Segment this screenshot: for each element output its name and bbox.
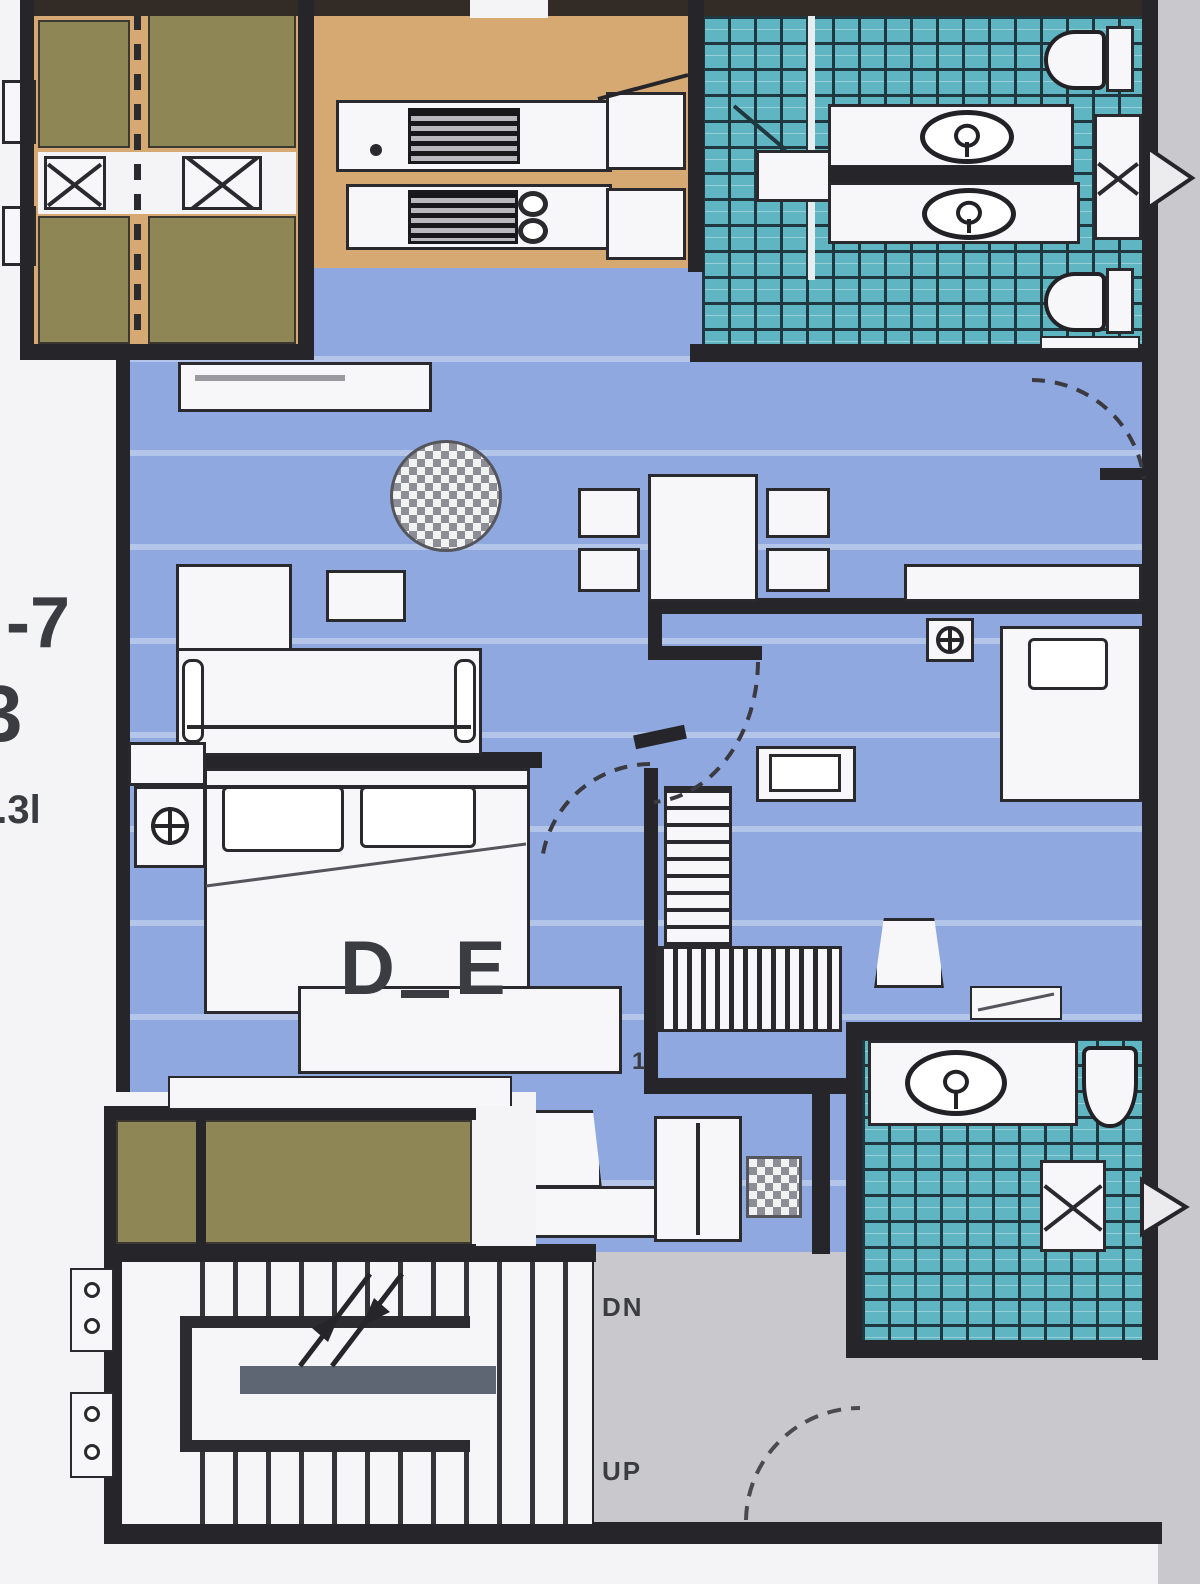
bath-sill xyxy=(1040,336,1140,350)
label-e: E xyxy=(455,925,506,1012)
balcony-divider xyxy=(196,1120,206,1244)
pillow xyxy=(1028,638,1108,690)
floor-plan: D E 1 DN UP -7 xyxy=(0,0,1200,1584)
refrigerator xyxy=(606,92,686,170)
meter-box xyxy=(70,1268,114,1352)
ac-unit xyxy=(926,618,974,662)
wall xyxy=(20,344,312,360)
shower-partition xyxy=(808,16,815,280)
door-number: 1 xyxy=(632,1048,645,1076)
wall xyxy=(20,0,34,358)
shaft-x-icon xyxy=(1040,1160,1106,1252)
wall xyxy=(812,1092,830,1254)
sideboard xyxy=(178,362,432,412)
wardrobe-hangers xyxy=(656,946,842,1032)
label-d: D xyxy=(340,925,395,1012)
wall-shelf xyxy=(128,742,206,786)
tall-cabinet xyxy=(654,1116,742,1242)
dining-chair xyxy=(578,488,640,538)
corridor-gray-area xyxy=(862,1358,1158,1524)
dishwasher-icon xyxy=(408,190,518,244)
wall xyxy=(116,352,130,1092)
shelf-line xyxy=(974,988,1058,1016)
washbasin-icon xyxy=(905,1050,1007,1116)
bed-label: D E xyxy=(340,920,560,1016)
shaft-x-icon xyxy=(1094,114,1142,240)
wall xyxy=(298,0,314,360)
wall xyxy=(104,1244,596,1262)
door-swing-arc xyxy=(1026,376,1148,484)
ac-unit xyxy=(134,786,206,868)
kitchen-door-gap xyxy=(470,0,548,18)
duct-arrow-icon xyxy=(1140,1178,1192,1238)
ac-fan-icon xyxy=(936,626,964,654)
door-swing-arc xyxy=(742,1406,864,1524)
round-rug-icon xyxy=(390,440,502,552)
knob-icon xyxy=(370,144,382,156)
desk xyxy=(756,746,856,802)
washbasin-icon xyxy=(920,110,1014,164)
dining-chair xyxy=(766,488,830,538)
shelving-unit xyxy=(664,786,732,948)
neighbour-bed xyxy=(148,12,296,148)
tv-checker-box xyxy=(746,1156,802,1218)
shower-drain-line xyxy=(728,100,794,158)
stairs-down-label: DN xyxy=(602,1292,644,1323)
partition-dashed-line xyxy=(134,14,141,344)
stairs-up-label: UP xyxy=(602,1456,642,1487)
double-sink-icon xyxy=(508,188,560,248)
stove-icon xyxy=(408,108,520,164)
dining-chair xyxy=(578,548,640,592)
stair-direction-arrows-icon xyxy=(278,1262,428,1374)
unit-label-letter: 3 xyxy=(0,668,23,760)
margin-small-note: 1.3l xyxy=(0,788,41,833)
washbasin-icon xyxy=(922,188,1016,240)
chair xyxy=(874,918,944,988)
balcony-door-gap xyxy=(476,1106,536,1246)
coffee-table xyxy=(326,570,406,622)
balcony-floor xyxy=(116,1120,472,1244)
shaft-x-icon xyxy=(182,156,262,210)
toilet-icon xyxy=(1044,272,1106,332)
toilet-icon xyxy=(1044,30,1106,90)
wall xyxy=(688,0,704,272)
dining-chair xyxy=(766,548,830,592)
chair xyxy=(526,1110,602,1188)
blanket-fold-line xyxy=(206,834,528,892)
ac-fan-icon xyxy=(151,807,189,845)
wall xyxy=(104,1522,1162,1544)
toilet-tank xyxy=(1106,268,1134,334)
neighbour-bed xyxy=(38,216,130,344)
duct-arrow-icon xyxy=(1146,146,1198,212)
balcony-sill xyxy=(168,1076,512,1110)
sofa xyxy=(176,648,482,756)
wall xyxy=(846,1022,862,1358)
unit-label-suffix: -7 xyxy=(6,582,70,664)
toilet-tank xyxy=(1106,26,1134,92)
neighbour-bed xyxy=(148,216,296,344)
neighbour-bed xyxy=(38,20,130,148)
shaft-x-icon xyxy=(44,156,106,210)
door-swing-arc xyxy=(538,760,654,864)
wall-shelf xyxy=(904,564,1142,602)
meter-box xyxy=(70,1392,114,1478)
wall xyxy=(846,1022,1158,1040)
dining-table xyxy=(648,474,758,602)
wall xyxy=(862,1340,1158,1358)
kitchen-cabinet xyxy=(606,188,686,260)
wall xyxy=(20,0,1158,16)
cabinet-door-line xyxy=(596,72,692,102)
scan-margin-right xyxy=(1158,0,1200,1584)
